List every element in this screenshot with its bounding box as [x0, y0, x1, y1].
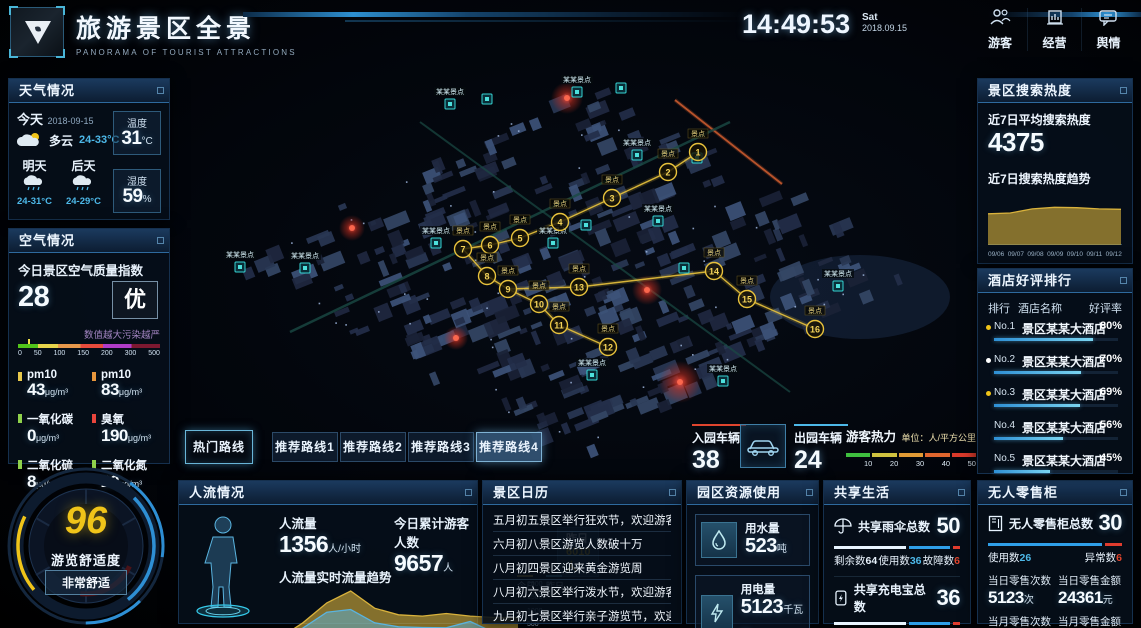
hotel-row[interactable]: No.4 景区某某大酒店 56% [988, 419, 1122, 452]
search-avg-value: 4375 [988, 128, 1122, 156]
exit-vehicles-value: 24 [794, 446, 848, 475]
axis-tick: 20 [890, 459, 898, 468]
heat-segment [846, 453, 870, 457]
retail-total-row: 无人零售柜总数 30 [988, 510, 1122, 536]
svg-text:4: 4 [557, 218, 562, 228]
heat-spot-core [564, 95, 570, 101]
umbrella-remain: 64 [866, 555, 878, 567]
route-marker[interactable]: 景点9 [498, 266, 518, 298]
map-canvas: 某某景点某某景点某某景点某某景点某某景点某某景点某某景点某某景点某某景点某某景点… [170, 62, 980, 482]
flow-trend-label: 人流量实时流量趋势 [279, 567, 392, 586]
hotel-row[interactable]: No.5 景区某某大酒店 45% [988, 452, 1122, 485]
flow-total-unit: 人 [443, 563, 453, 574]
human-hologram-icon [191, 511, 255, 619]
sharing-panel: 共享生活 共享雨伞总数 50 剩余数64 使用数36 故障数6 [823, 480, 971, 624]
water-drop-icon [711, 530, 727, 550]
aqi-note: 数值越大污染越严 [18, 327, 160, 341]
retail-total-label: 无人零售柜总数 [1009, 515, 1093, 532]
today-label: 今天 [17, 112, 43, 127]
air-panel-title: 空气情况 [9, 229, 169, 253]
pollutant-item: pm1083μg/m³ [92, 369, 160, 401]
calendar-item[interactable]: 六月初八景区游览人数破十万 [493, 532, 671, 556]
umbrella-row: 共享雨伞总数 50 [834, 513, 960, 539]
svg-text:2: 2 [665, 168, 670, 178]
calendar-panel: 景区日历 五月初五景区举行狂欢节，欢迎游客朋友... 六月初八景区游览人数破十万… [482, 480, 682, 624]
date: 2018.09.15 [862, 24, 907, 33]
retail-panel: 无人零售柜 无人零售柜总数 30 使用数26 异常数6 当日零售次数5 [977, 480, 1133, 624]
date-block: Sat 2018.09.15 [862, 13, 907, 33]
pollutant-item: 臭氧190μg/m³ [92, 411, 160, 447]
temperature-unit: °C [141, 136, 152, 147]
resources-title: 园区资源使用 [687, 481, 818, 505]
axis-tick: 150 [77, 350, 89, 357]
calendar-item[interactable]: 五月初五景区举行狂欢节，欢迎游客朋友... [493, 508, 671, 532]
heat-spot-core [644, 287, 650, 293]
svg-text:景点: 景点 [808, 307, 822, 315]
car-icon [746, 435, 780, 457]
water-label: 用水量 [745, 520, 787, 536]
aqi-value: 28 [18, 281, 49, 314]
axis-tick: 100 [54, 350, 66, 357]
header-decoration-line [243, 12, 743, 17]
heat-spot-core [453, 335, 459, 341]
svg-text:9: 9 [505, 285, 510, 295]
axis-tick: 50 [968, 459, 976, 468]
recommended-route-4-button[interactable]: 推荐路线4 [476, 432, 542, 462]
nav-item-visitors[interactable]: 游客 [973, 8, 1027, 51]
weekday: Sat [862, 13, 907, 24]
svg-text:景点: 景点 [483, 223, 497, 231]
flow-rate-unit: 人/小时 [328, 544, 361, 555]
power-label: 用电量 [741, 581, 804, 597]
city-map[interactable]: 某某景点某某景点某某景点某某景点某某景点某某景点某某景点某某景点某某景点某某景点… [170, 62, 980, 482]
tourist-heat-legend: 游客热力 单位：人/平方公里 1020304050 [846, 426, 976, 468]
pollutant-dot [92, 414, 96, 423]
svg-text:6: 6 [487, 241, 492, 251]
human-figure [187, 511, 259, 624]
svg-text:某某景点: 某某景点 [291, 252, 319, 260]
pollutant-item: 一氧化碳0μg/m³ [18, 411, 86, 447]
poi-marker[interactable]: 某某景点 [289, 251, 321, 273]
opinion-icon [1098, 8, 1120, 26]
svg-text:7: 7 [460, 245, 465, 255]
temperature-value: 31 [121, 128, 141, 149]
route-marker[interactable]: 景点10 [529, 281, 549, 313]
hotel-table-header: 排行 酒店名称 好评率 [988, 300, 1122, 316]
search-trend-label: 近7日搜索热度趋势 [988, 170, 1122, 187]
business-icon [1045, 8, 1065, 26]
pollutant-dot [18, 414, 22, 423]
svg-text:15: 15 [742, 295, 752, 305]
triangle-logo-icon [23, 19, 53, 46]
umbrella-stats: 剩余数64 使用数36 故障数6 [834, 553, 960, 568]
svg-text:14: 14 [709, 267, 719, 277]
temperature-box: 温度 31°C [113, 111, 161, 155]
water-usage-box: 用水量 523吨 [695, 514, 810, 566]
power-usage-box: 用电量 5123千瓦时 [695, 575, 810, 628]
svg-text:景点: 景点 [691, 130, 705, 138]
hotel-row[interactable]: No.2 景区某某大酒店 70% [988, 353, 1122, 386]
svg-text:11: 11 [554, 321, 564, 331]
powerbank-icon [834, 589, 848, 607]
heat-spot-core [677, 379, 683, 385]
route-marker[interactable]: 景点12 [598, 324, 618, 356]
nav-label-visitors: 游客 [973, 34, 1027, 51]
svg-text:16: 16 [810, 325, 820, 335]
flow-total-label: 今日累计游客人数 [394, 513, 477, 551]
axis-tick: 09/11 [1086, 251, 1102, 258]
aqi-grade: 优 [112, 281, 158, 319]
umbrella-label: 共享雨伞总数 [858, 518, 930, 535]
heat-gradient-bar [846, 453, 976, 457]
page-subtitle: PANORAMA OF TOURIST ATTRACTIONS [76, 48, 297, 57]
air-quality-panel: 空气情况 今日景区空气质量指数 28 优 数值越大污染越严 0501001502… [8, 228, 170, 464]
heat-segment [899, 453, 923, 457]
nav-label-business: 经营 [1028, 34, 1081, 51]
search-heat-panel: 景区搜索热度 近7日平均搜索热度 4375 近7日搜索热度趋势 09/0609/… [977, 78, 1133, 264]
route-marker[interactable]: 景点4 [550, 199, 570, 231]
svg-text:1: 1 [695, 148, 700, 158]
gauge-rings [2, 464, 170, 628]
dashboard: 某某景点某某景点某某景点某某景点某某景点某某景点某某景点某某景点某某景点某某景点… [0, 0, 1141, 628]
comfort-gauge: 96 游览舒适度 非常舒适 [2, 464, 170, 628]
axis-tick: 09/10 [1067, 251, 1083, 258]
lightning-icon [710, 603, 724, 623]
svg-text:景点: 景点 [740, 277, 754, 285]
heat-legend-label: 游客热力 [846, 426, 896, 445]
entry-vehicles: 入园车辆 38 [692, 424, 746, 475]
water-value: 523 [745, 535, 777, 557]
route-marker[interactable]: 景点13 [569, 264, 589, 296]
weather-tomorrow: 明天 24-31°C [17, 157, 52, 207]
svg-text:景点: 景点 [553, 200, 567, 208]
flow-rate-label: 人流量 [279, 513, 361, 532]
humidity-unit: % [143, 194, 152, 205]
today-desc: 多云 [49, 132, 73, 149]
retail-stats-grid: 当日零售次数5123次 当日零售金额24361元 当月零售次数5.1万次 当月零… [988, 573, 1122, 628]
svg-text:3: 3 [609, 194, 614, 204]
svg-text:景点: 景点 [501, 267, 515, 275]
pollutant-item: pm1043μg/m³ [18, 369, 86, 401]
axis-tick: 30 [916, 459, 924, 468]
axis-tick: 200 [101, 350, 113, 357]
umbrella-fault: 6 [954, 555, 960, 567]
tomorrow-range: 24-31°C [17, 196, 52, 207]
pollutant-dot [92, 372, 96, 381]
flow-rate-value: 1356 [279, 531, 328, 557]
retail-bar [988, 543, 1122, 546]
recommended-route-2-button[interactable]: 推荐路线2 [340, 432, 406, 462]
hotel-row[interactable]: No.3 景区某某大酒店 69% [988, 386, 1122, 419]
comfort-label: 游览舒适度 [2, 550, 170, 569]
heat-segment [925, 453, 949, 457]
powerbank-bar [834, 622, 960, 625]
svg-text:某某景点: 某某景点 [623, 139, 651, 147]
poi-marker[interactable] [581, 220, 591, 230]
svg-text:13: 13 [574, 283, 584, 293]
svg-text:景点: 景点 [480, 254, 494, 262]
aqi-marker [28, 339, 30, 344]
humidity-box: 湿度 59% [113, 169, 161, 213]
svg-text:12: 12 [603, 343, 613, 353]
poi-marker[interactable]: 某某景点 [434, 87, 466, 109]
svg-text:景点: 景点 [572, 265, 586, 273]
nav-item-business[interactable]: 经营 [1027, 8, 1081, 51]
entry-accent-line [692, 424, 746, 426]
water-icon-tile [701, 522, 737, 558]
retail-total-value: 30 [1099, 510, 1122, 536]
humidity-value: 59 [122, 186, 142, 207]
car-icon-box [740, 424, 786, 468]
search-avg-label: 近7日平均搜索热度 [988, 111, 1122, 128]
search-trend-chart [988, 193, 1122, 245]
svg-text:景点: 景点 [552, 303, 566, 311]
day-after-label: 后天 [66, 157, 101, 174]
resources-panel: 园区资源使用 用水量 523吨 [686, 480, 819, 624]
axis-tick: 09/08 [1027, 251, 1043, 258]
svg-text:某某景点: 某某景点 [644, 205, 672, 213]
divider [834, 576, 960, 577]
heat-segment [952, 453, 976, 457]
calendar-item[interactable]: 九月初七景区举行亲子游览节，欢迎游客... [493, 604, 671, 627]
hotel-row[interactable]: No.1 景区某某大酒店 80% [988, 320, 1122, 353]
retail-stat: 当日零售次数5123次 [988, 573, 1052, 610]
svg-text:景点: 景点 [601, 325, 615, 333]
umbrella-total: 50 [937, 513, 960, 539]
rank-dot [986, 358, 991, 363]
svg-text:某某景点: 某某景点 [563, 76, 591, 84]
axis-tick: 09/06 [988, 251, 1004, 258]
entry-vehicles-value: 38 [692, 446, 746, 475]
retail-used: 26 [1020, 552, 1032, 564]
svg-text:某某景点: 某某景点 [578, 359, 606, 367]
aqi-label: 今日景区空气质量指数 [18, 260, 160, 279]
powerbank-label: 共享充电宝总数 [854, 581, 937, 615]
aqi-scale-ticks: 050100150200300500 [18, 350, 160, 357]
rain-icon [71, 174, 95, 191]
heat-legend-ticks: 1020304050 [846, 459, 976, 468]
svg-text:景点: 景点 [661, 150, 675, 158]
retail-abnormal: 6 [1116, 552, 1122, 564]
exit-vehicles: 出园车辆 24 [794, 424, 848, 475]
hot-route-button[interactable]: 热门路线 [185, 430, 253, 464]
svg-text:景点: 景点 [456, 227, 470, 235]
axis-tick: 300 [125, 350, 137, 357]
water-unit: 吨 [777, 544, 787, 555]
route-marker[interactable]: 景点7 [453, 226, 473, 258]
nav-item-opinion[interactable]: 舆情 [1081, 8, 1135, 51]
flow-total-value: 9657 [394, 550, 443, 576]
visitors-icon [989, 8, 1011, 26]
rank-dot [986, 391, 991, 396]
route-marker[interactable]: 景点5 [510, 215, 530, 247]
today-date: 2018-09-15 [47, 116, 93, 126]
sharing-title: 共享生活 [824, 481, 970, 505]
svg-text:某某景点: 某某景点 [226, 251, 254, 259]
clock: 14:49:53 [742, 9, 850, 40]
svg-text:景点: 景点 [605, 176, 619, 184]
header: 旅游景区全景 PANORAMA OF TOURIST ATTRACTIONS 1… [0, 0, 1141, 62]
svg-text:某某景点: 某某景点 [709, 365, 737, 373]
flow-total-block: 今日累计游客人数 9657人 [394, 513, 477, 581]
day-after-range: 24-29°C [66, 196, 101, 207]
pollutant-dot [18, 372, 22, 381]
nav-label-opinion: 舆情 [1082, 34, 1135, 51]
calendar-item[interactable]: 八月初四景区迎来黄金游览周 [493, 556, 671, 580]
heat-legend-unit: 单位：人/平方公里 [901, 431, 976, 444]
exit-vehicles-label: 出园车辆 [794, 429, 848, 446]
svg-text:某某景点: 某某景点 [422, 227, 450, 235]
route-marker[interactable]: 景点1 [688, 129, 708, 161]
weather-panel-title: 天气情况 [9, 79, 169, 103]
entry-vehicles-label: 入园车辆 [692, 429, 746, 446]
rank-dot [986, 325, 991, 330]
app-logo [10, 7, 64, 57]
svg-text:景点: 景点 [513, 216, 527, 224]
svg-text:景点: 景点 [532, 282, 546, 290]
calendar-title: 景区日历 [483, 481, 681, 505]
recommended-route-1-button[interactable]: 推荐路线1 [272, 432, 338, 462]
svg-text:8: 8 [484, 272, 489, 282]
axis-tick: 50 [34, 350, 42, 357]
axis-tick: 10 [864, 459, 872, 468]
retail-stat: 当月零售次数5.1万次 [988, 614, 1052, 628]
rain-icon [22, 174, 46, 191]
axis-tick: 0 [18, 350, 22, 357]
power-value: 5123 [741, 596, 784, 618]
poi-marker[interactable] [616, 83, 626, 93]
aqi-scale-bar [18, 344, 160, 348]
poi-marker[interactable] [679, 263, 689, 273]
weather-day-after: 后天 24-29°C [66, 157, 101, 207]
comfort-status-button[interactable]: 非常舒适 [45, 570, 127, 595]
heat-spot-core [349, 225, 355, 231]
heat-segment [872, 453, 896, 457]
retail-stat: 当日零售金额24361元 [1058, 573, 1122, 610]
axis-tick: 09/09 [1047, 251, 1063, 258]
power-icon-tile [701, 595, 733, 628]
top-nav: 游客 经营 舆情 [973, 8, 1135, 51]
retail-stat: 当月零售金额54384元 [1058, 614, 1122, 628]
tomorrow-label: 明天 [17, 157, 52, 174]
umbrella-used: 36 [910, 555, 922, 567]
umbrella-bar [834, 546, 960, 549]
retail-usage-stats: 使用数26 异常数6 [988, 550, 1122, 565]
flow-rate-block: 人流量 1356人/小时 [279, 513, 361, 562]
powerbank-total: 36 [937, 585, 960, 611]
hotel-ranking-panel: 酒店好评排行 排行 酒店名称 好评率 No.1 景区某某大酒店 80% No.2… [977, 268, 1133, 474]
header-decoration-line-2 [345, 20, 745, 22]
exit-accent-line [794, 424, 848, 426]
people-flow-panel: 人流情况 人流量 1356人/小时 今日累计游客人数 9657人 昨日 6010… [178, 480, 478, 624]
powerbank-row: 共享充电宝总数 36 [834, 581, 960, 615]
axis-tick: 09/07 [1008, 251, 1024, 258]
calendar-item[interactable]: 八月初六景区举行泼水节，欢迎游客朋友... [493, 580, 671, 604]
weather-panel: 天气情况 今天 2018-09-15 多云 24-33°C 温度 31°C 明 [8, 78, 170, 220]
poi-marker[interactable] [482, 94, 492, 104]
rank-dot [986, 457, 991, 462]
axis-tick: 09/12 [1106, 251, 1122, 258]
svg-text:5: 5 [517, 234, 522, 244]
svg-text:景点: 景点 [707, 249, 721, 257]
umbrella-icon [834, 518, 852, 535]
rank-dot [986, 424, 991, 429]
axis-tick: 500 [148, 350, 160, 357]
svg-text:某某景点: 某某景点 [436, 88, 464, 96]
people-flow-title: 人流情况 [179, 481, 477, 505]
hotel-ranking-title: 酒店好评排行 [978, 269, 1132, 293]
vending-cabinet-icon [988, 515, 1003, 532]
search-heat-title: 景区搜索热度 [978, 79, 1132, 103]
recommended-route-3-button[interactable]: 推荐路线3 [408, 432, 474, 462]
axis-tick: 40 [942, 459, 950, 468]
comfort-score: 96 [2, 500, 170, 543]
cloudy-icon [17, 131, 43, 149]
search-x-axis: 09/0609/0709/0809/0909/1009/1109/12 [988, 251, 1122, 258]
svg-text:某某景点: 某某景点 [824, 270, 852, 278]
svg-text:10: 10 [534, 300, 544, 310]
